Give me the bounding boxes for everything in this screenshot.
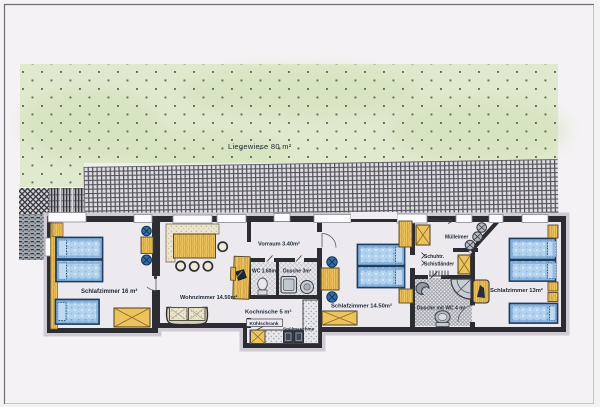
svg-text:Schlafzimmer 14.50m²: Schlafzimmer 14.50m²	[331, 303, 392, 310]
svg-text:Mülleimer: Mülleimer	[445, 235, 468, 241]
svg-text:Schuhtr.: Schuhtr.	[424, 254, 445, 260]
svg-text:Dusche 3m²: Dusche 3m²	[283, 269, 312, 275]
svg-text:Vorraum 3.40m²: Vorraum 3.40m²	[258, 241, 300, 248]
svg-text:Schistländer: Schistländer	[424, 262, 454, 268]
svg-text:WC 1.60m²: WC 1.60m²	[252, 269, 278, 275]
svg-text:Schlafzimmer 13m²: Schlafzimmer 13m²	[490, 287, 543, 294]
svg-text:Wohnzimmer 14.50m²: Wohnzimmer 14.50m²	[180, 294, 238, 301]
svg-text:Kühlschrank: Kühlschrank	[250, 321, 279, 327]
svg-text:Spülmaschine: Spülmaschine	[283, 327, 315, 332]
svg-text:Schlafzimmer 16 m²: Schlafzimmer 16 m²	[81, 288, 137, 295]
svg-text:Liegewiese 80 m²: Liegewiese 80 m²	[228, 142, 292, 151]
svg-text:Kochnische 5 m²: Kochnische 5 m²	[245, 309, 291, 316]
svg-text:Dusche mit WC 4 m²: Dusche mit WC 4 m²	[417, 306, 466, 312]
